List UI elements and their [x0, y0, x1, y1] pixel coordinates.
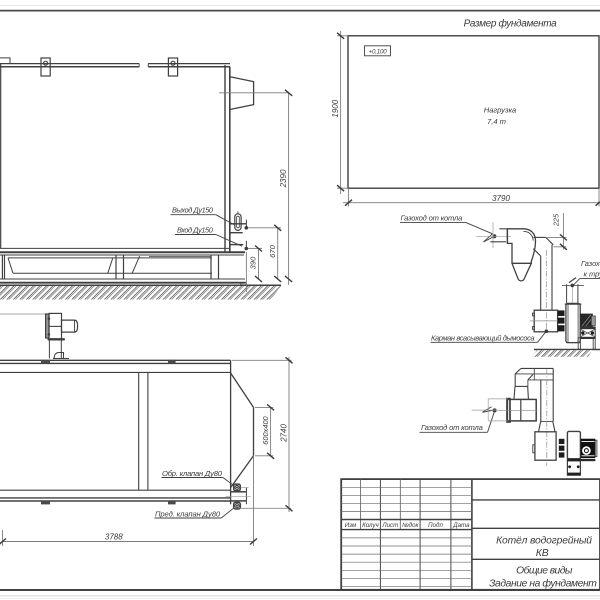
svg-text:Задание на фундамент: Задание на фундамент [489, 577, 597, 589]
svg-text:390: 390 [249, 256, 258, 269]
svg-text:2390: 2390 [279, 169, 288, 188]
svg-text:3788: 3788 [105, 533, 123, 542]
svg-text:Газоход от котла: Газоход от котла [421, 423, 483, 432]
svg-text:3790: 3790 [492, 194, 510, 203]
svg-text:+0,100: +0,100 [369, 49, 388, 56]
svg-text:Газоход от котла: Газоход от котла [401, 214, 463, 223]
svg-text:Лист: Лист [381, 522, 398, 529]
svg-text:Изм: Изм [345, 522, 357, 529]
svg-text:КВ: КВ [536, 548, 549, 559]
svg-text:Выход Ду150: Выход Ду150 [172, 206, 213, 215]
svg-text:Общие виды: Общие виды [516, 565, 573, 577]
svg-text:Котёл водогрейный: Котёл водогрейный [496, 535, 592, 546]
svg-text:Газоход: Газоход [581, 259, 600, 268]
svg-text:Подп: Подп [428, 522, 443, 529]
svg-text:Дата: Дата [452, 522, 470, 529]
svg-text:7,4 т: 7,4 т [487, 117, 506, 126]
svg-text:Вход Ду150: Вход Ду150 [177, 226, 213, 235]
svg-text:1900: 1900 [331, 99, 340, 117]
svg-text:Нагрузка: Нагрузка [484, 106, 517, 115]
svg-text:2740: 2740 [280, 424, 289, 443]
svg-text:225: 225 [551, 213, 560, 227]
svg-text:670: 670 [268, 244, 277, 257]
svg-text:600х400: 600х400 [261, 415, 270, 444]
svg-text:Карман всасывающий дымососа: Карман всасывающий дымососа [431, 334, 534, 343]
svg-text:Пред. клапан Ду80: Пред. клапан Ду80 [155, 509, 221, 518]
svg-text:к трубе: к трубе [584, 270, 600, 279]
svg-text:№док: №док [402, 522, 420, 529]
svg-text:Размер фундамента: Размер фундамента [464, 18, 558, 30]
svg-text:Обр. клапан Ду80: Обр. клапан Ду80 [162, 469, 223, 478]
svg-text:Колуч: Колуч [362, 522, 379, 529]
